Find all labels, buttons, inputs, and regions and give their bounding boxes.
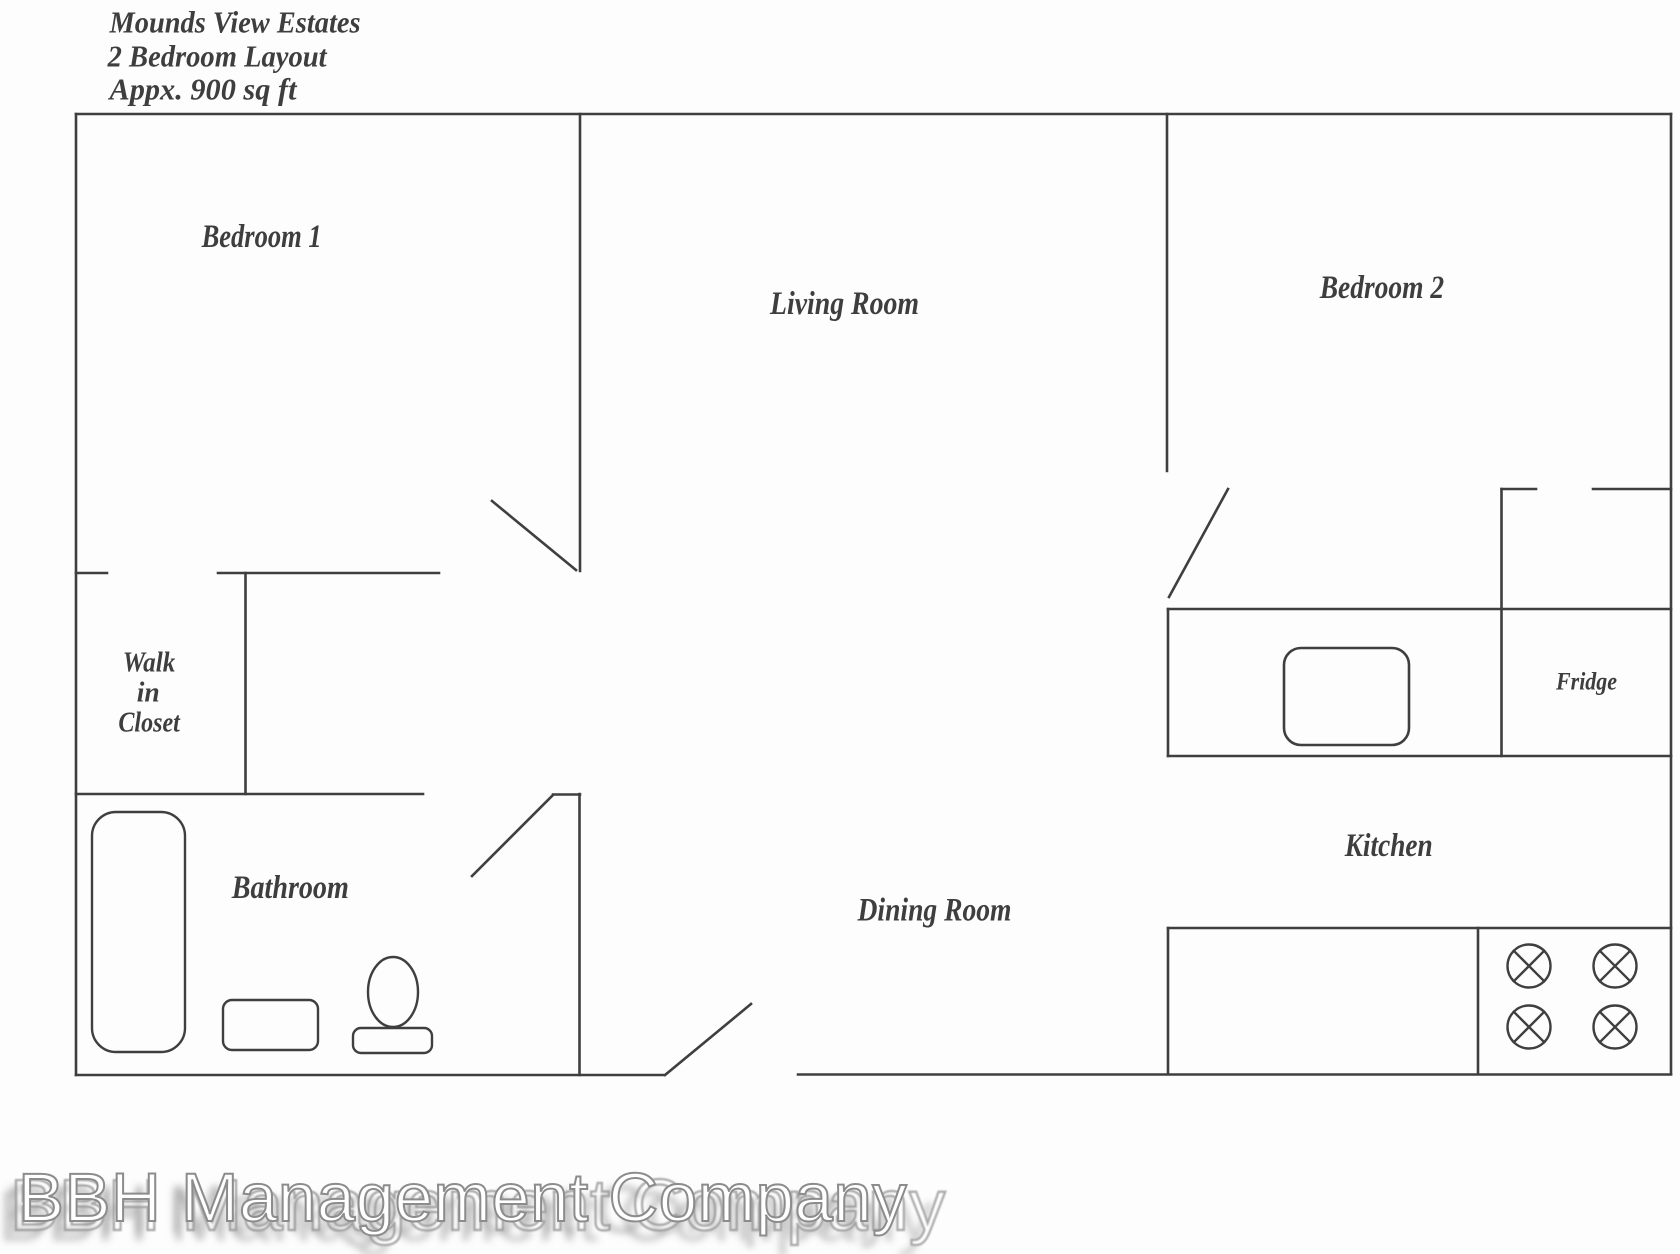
svg-text:Walk: Walk [123, 647, 176, 679]
svg-text:Closet: Closet [118, 707, 180, 739]
svg-text:Fridge: Fridge [1555, 669, 1617, 696]
svg-text:in: in [137, 676, 160, 708]
svg-text:Mounds View Estates: Mounds View Estates [109, 6, 361, 40]
svg-text:2 Bedroom Layout: 2 Bedroom Layout [107, 39, 328, 73]
svg-text:Appx. 900 sq ft: Appx. 900 sq ft [108, 72, 299, 106]
svg-text:Dining Room: Dining Room [857, 893, 1012, 929]
svg-text:Kitchen: Kitchen [1344, 828, 1433, 864]
svg-text:Living Room: Living Room [769, 286, 919, 322]
svg-text:Bedroom 1: Bedroom 1 [201, 219, 322, 255]
svg-text:Bathroom: Bathroom [231, 870, 349, 906]
svg-text:Bedroom 2: Bedroom 2 [1319, 270, 1444, 306]
